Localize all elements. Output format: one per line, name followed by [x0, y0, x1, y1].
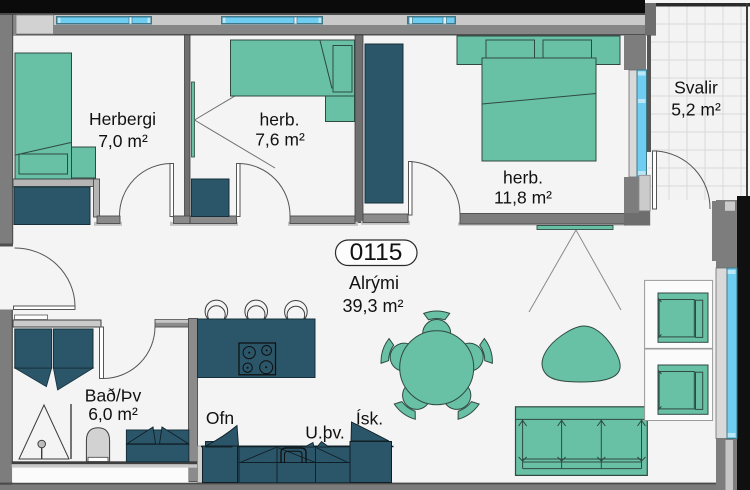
svg-text:U.þv.: U.þv.: [305, 423, 345, 443]
svg-text:Herbergi: Herbergi: [89, 109, 156, 129]
svg-text:11,8 m²: 11,8 m²: [494, 188, 552, 208]
svg-text:39,3 m²: 39,3 m²: [342, 296, 403, 316]
svg-text:Bað/Þv: Bað/Þv: [85, 386, 142, 406]
svg-text:herb.: herb.: [503, 168, 543, 188]
svg-text:Alrými: Alrými: [349, 273, 399, 293]
svg-text:Ísk.: Ísk.: [356, 409, 383, 429]
svg-text:5,2 m²: 5,2 m²: [671, 100, 721, 120]
svg-text:0115: 0115: [350, 239, 403, 266]
svg-text:6,0 m²: 6,0 m²: [88, 404, 138, 424]
svg-text:7,6 m²: 7,6 m²: [255, 130, 305, 150]
svg-text:7,0 m²: 7,0 m²: [98, 131, 148, 151]
svg-text:herb.: herb.: [260, 110, 300, 130]
svg-text:Ofn: Ofn: [206, 408, 234, 428]
svg-text:Svalir: Svalir: [674, 78, 718, 98]
